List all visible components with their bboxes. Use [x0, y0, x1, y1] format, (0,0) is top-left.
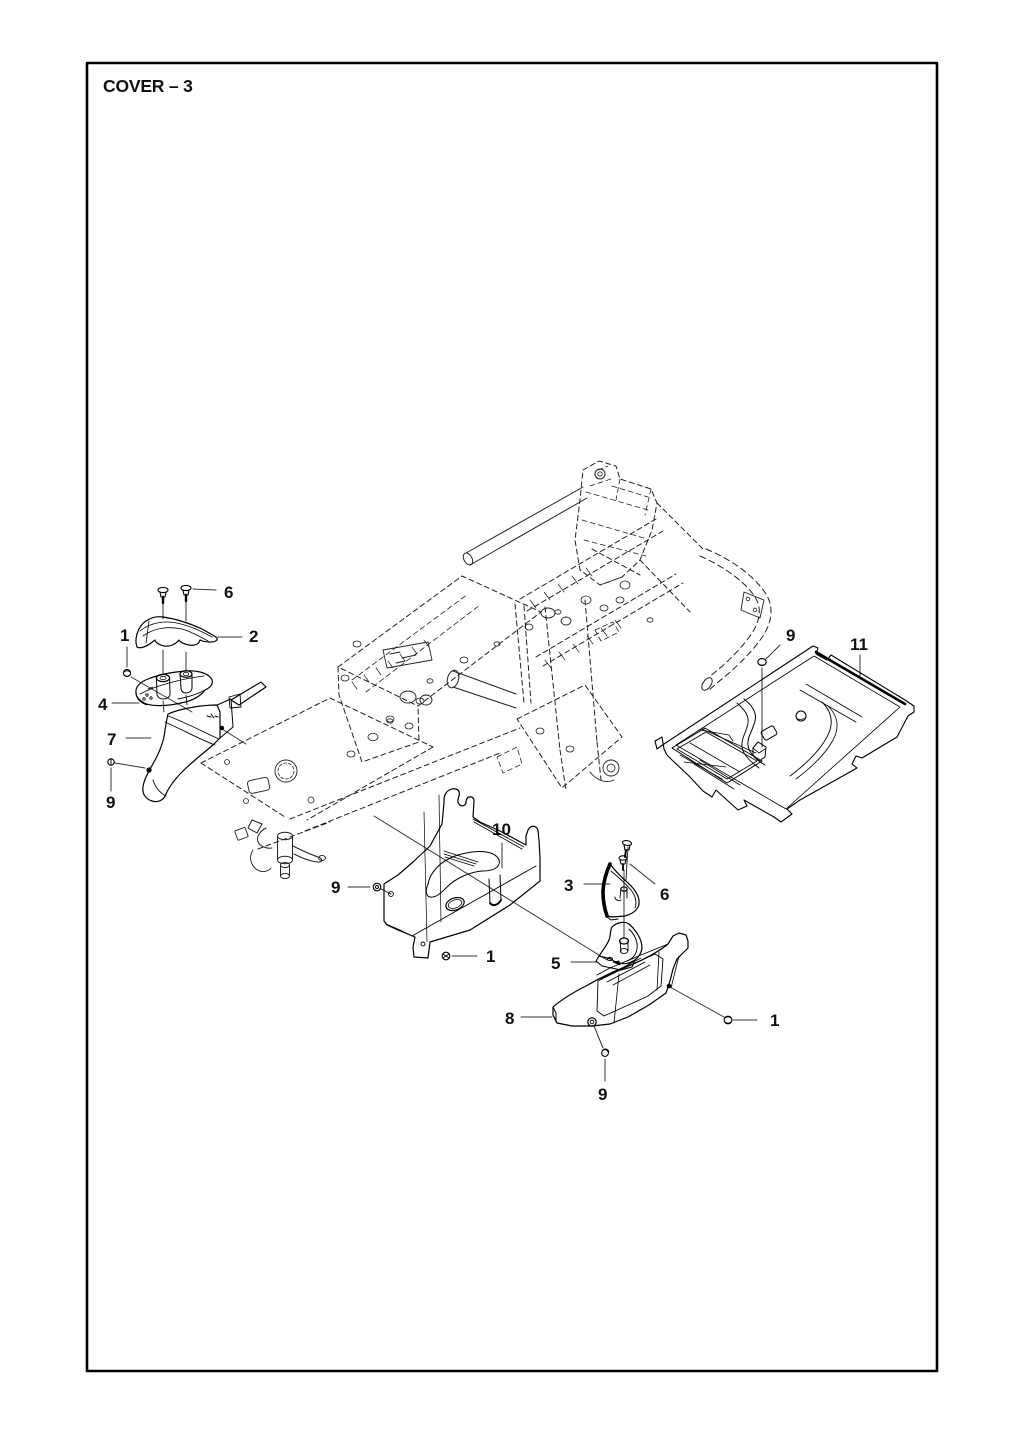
svg-text:9: 9 [786, 626, 795, 645]
svg-text:10: 10 [492, 820, 511, 839]
svg-text:6: 6 [224, 583, 233, 602]
svg-text:7: 7 [107, 730, 116, 749]
svg-text:1: 1 [120, 626, 129, 645]
svg-text:9: 9 [331, 878, 340, 897]
svg-text:1: 1 [770, 1011, 779, 1030]
svg-text:COVER – 3: COVER – 3 [103, 76, 193, 96]
svg-text:6: 6 [660, 885, 669, 904]
svg-text:1: 1 [486, 947, 495, 966]
svg-text:8: 8 [505, 1009, 514, 1028]
svg-text:9: 9 [598, 1085, 607, 1104]
svg-text:5: 5 [551, 954, 560, 973]
svg-text:9: 9 [106, 793, 115, 812]
svg-text:2: 2 [249, 627, 258, 646]
svg-text:3: 3 [564, 876, 573, 895]
svg-text:11: 11 [850, 635, 868, 654]
svg-text:4: 4 [98, 695, 108, 714]
